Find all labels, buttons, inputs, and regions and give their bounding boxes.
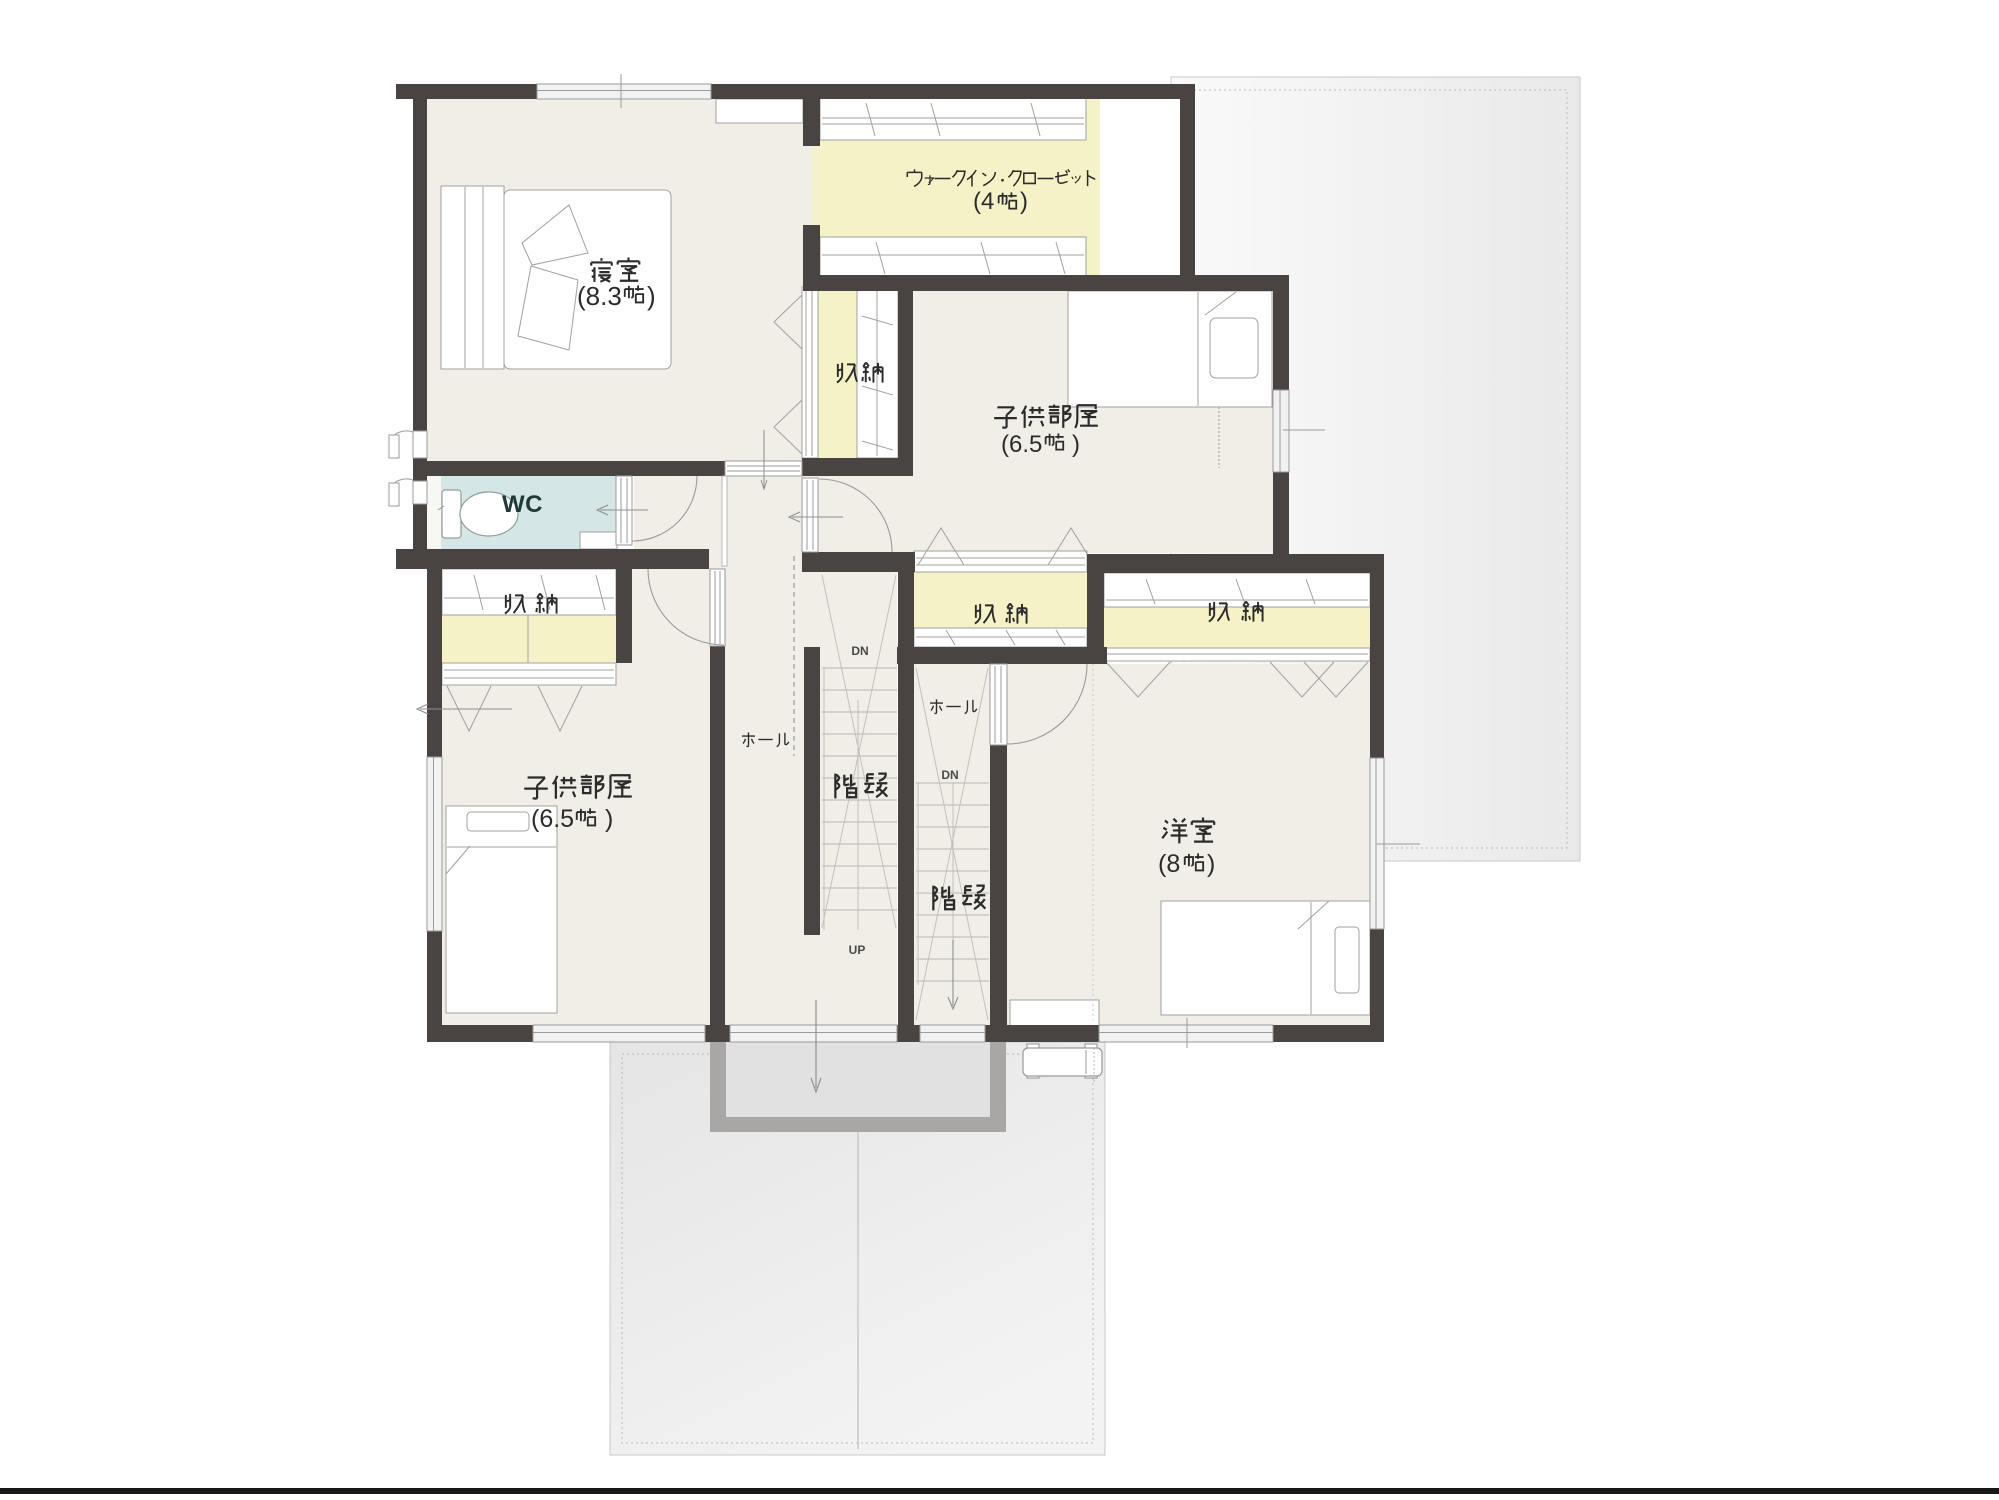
svg-text:): ) bbox=[647, 281, 656, 311]
svg-text:WC: WC bbox=[502, 491, 543, 518]
svg-text:UP: UP bbox=[849, 943, 866, 957]
svg-text:DN: DN bbox=[851, 644, 868, 658]
svg-text:(6.5: (6.5 bbox=[531, 805, 574, 833]
svg-text:(4: (4 bbox=[973, 188, 994, 215]
svg-text:(8: (8 bbox=[1158, 850, 1180, 878]
svg-text:(6.5: (6.5 bbox=[1001, 431, 1042, 458]
svg-text:): ) bbox=[605, 805, 613, 833]
svg-text:): ) bbox=[1020, 188, 1028, 215]
svg-text:DN: DN bbox=[941, 768, 958, 782]
svg-text:): ) bbox=[1072, 431, 1080, 458]
svg-text:(8.3: (8.3 bbox=[577, 281, 622, 311]
svg-text:): ) bbox=[1207, 850, 1215, 878]
